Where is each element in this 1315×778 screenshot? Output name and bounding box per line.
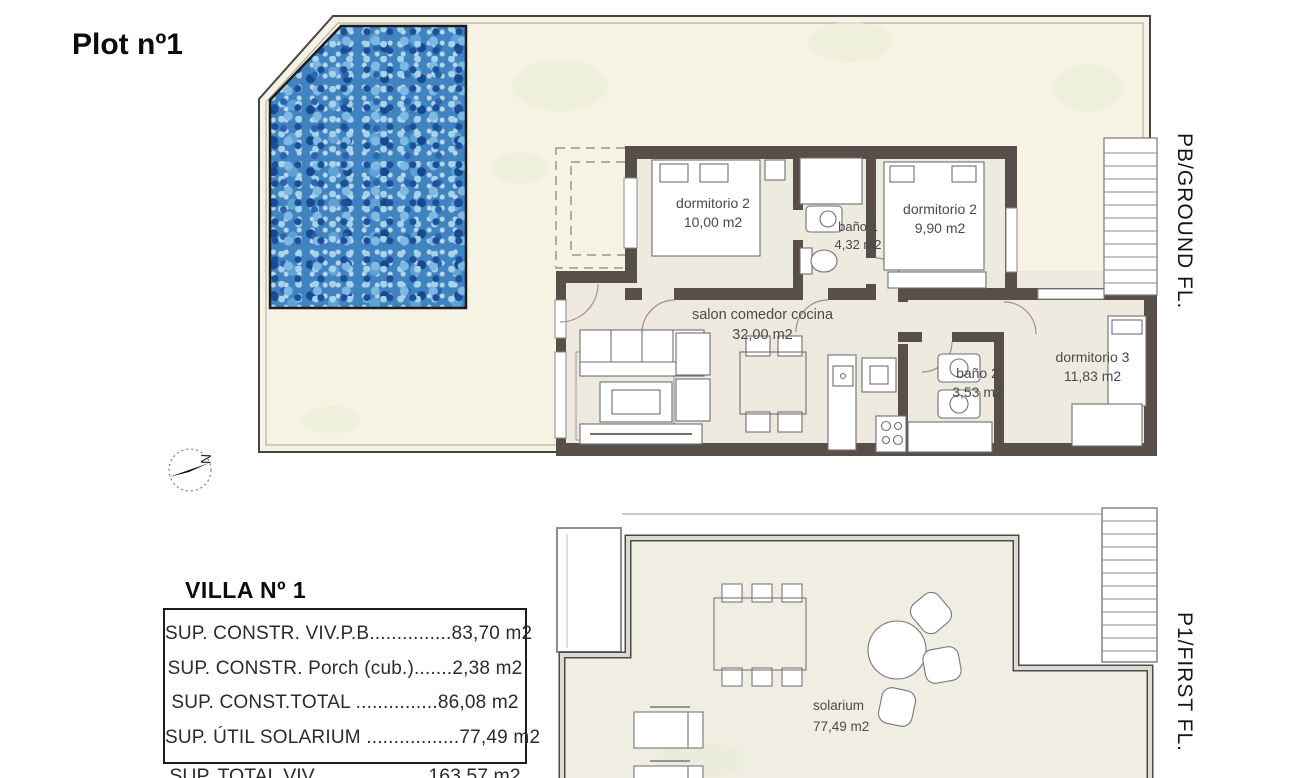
summary-row-dots: ............... xyxy=(369,623,451,644)
stairs-first-floor xyxy=(1102,508,1157,662)
room-name: baño 2 xyxy=(930,364,1025,383)
summary-row: SUP. CONST.TOTAL ...............86,08 m2 xyxy=(165,692,525,714)
summary-row-value: 83,70 m2 xyxy=(451,623,532,644)
room-name: dormitorio 3 xyxy=(1025,348,1160,367)
room-label-salon: salon comedor cocina 32,00 m2 xyxy=(655,306,870,345)
room-name: dormitorio 2 xyxy=(638,194,788,213)
room-area: 32,00 m2 xyxy=(655,326,870,346)
plot-title: Plot nº1 xyxy=(72,28,183,62)
room-name: solarium xyxy=(813,696,933,717)
room-label-dormitorio2-right: dormitorio 2 9,90 m2 xyxy=(875,200,1005,238)
pool-border xyxy=(270,26,466,308)
room-area: 9,90 m2 xyxy=(875,219,1005,238)
ground-floor-side-label: PB/GROUND FL. xyxy=(1172,133,1196,353)
summary-row-dots: ....... xyxy=(414,658,452,679)
summary-row-value: 86,08 m2 xyxy=(438,692,519,713)
villa-summary-title: VILLA Nº 1 xyxy=(185,577,306,604)
summary-total-label: SUP. TOTAL VIV xyxy=(169,765,320,778)
summary-row-dots: ............... xyxy=(356,692,438,713)
summary-row-dots: ................. xyxy=(366,727,459,748)
summary-row: SUP. CONSTR. VIV.P.B...............83,70… xyxy=(165,623,525,645)
room-name: dormitorio 2 xyxy=(875,200,1005,219)
porch-dashed-outline xyxy=(556,148,627,268)
stairs-ground-floor xyxy=(1104,138,1157,295)
summary-row-label: SUP. CONSTR. VIV.P.B xyxy=(165,623,369,644)
room-area: 77,49 m2 xyxy=(813,717,933,738)
room-label-dormitorio3: dormitorio 3 11,83 m2 xyxy=(1025,348,1160,386)
summary-row-label: SUP. CONST.TOTAL xyxy=(171,692,355,713)
room-name: salon comedor cocina xyxy=(655,306,870,326)
room-area: 10,00 m2 xyxy=(638,213,788,232)
summary-row-label: SUP. ÚTIL SOLARIUM xyxy=(165,727,366,748)
summary-row: SUP. CONSTR. Porch (cub.).......2,38 m2 xyxy=(165,658,525,680)
summary-row-label: SUP. CONSTR. Porch (cub.) xyxy=(168,658,414,679)
room-label-solarium: solarium 77,49 m2 xyxy=(813,696,933,738)
floor-plan-sheet: Plot nº1 dormitorio 2 10,00 m2 baño 1 4,… xyxy=(0,0,1315,778)
room-area: 3,53 m2 xyxy=(930,383,1025,402)
summary-row-value: 77,49 m2 xyxy=(459,727,540,748)
sun-loungers xyxy=(634,707,703,778)
summary-total-value: 163,57 m2 xyxy=(428,765,520,778)
room-area: 4,32 m2 xyxy=(818,236,898,254)
room-label-bano2: baño 2 3,53 m2 xyxy=(930,364,1025,402)
villa-summary-table: SUP. CONSTR. VIV.P.B...............83,70… xyxy=(163,608,527,764)
summary-total-row: SUP. TOTAL VIV ....................163,5… xyxy=(155,765,535,778)
room-area: 11,83 m2 xyxy=(1025,367,1160,386)
compass-north-letter: N xyxy=(198,454,214,465)
summary-row-value: 2,38 m2 xyxy=(452,658,522,679)
summary-total-dots: .................... xyxy=(320,765,428,778)
first-floor-side-label: P1/FIRST FL. xyxy=(1172,612,1196,772)
first-floor-left-annex xyxy=(557,528,621,652)
room-label-dormitorio2-left: dormitorio 2 10,00 m2 xyxy=(638,194,788,232)
summary-row: SUP. ÚTIL SOLARIUM .................77,4… xyxy=(165,727,525,749)
